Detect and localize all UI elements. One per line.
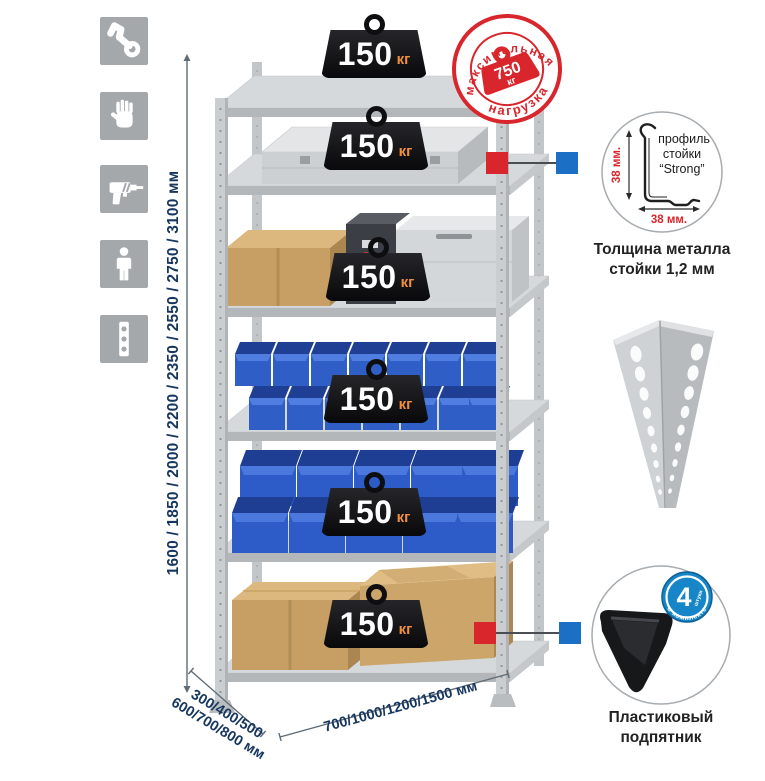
load-unit: кг — [399, 621, 413, 638]
load-value: 150 — [338, 494, 393, 531]
weight-ring-icon — [368, 237, 389, 258]
load-value: 150 — [338, 36, 393, 73]
load-value: 150 — [340, 381, 395, 418]
weight-plate-icon: 150 кг — [325, 253, 431, 301]
shelf-load-badge: 150 кг — [323, 106, 429, 170]
profile-dim-horizontal: 38 мм. — [651, 214, 687, 226]
load-unit: кг — [399, 143, 413, 160]
load-unit: кг — [399, 396, 413, 413]
angle-post-graphic — [613, 320, 714, 508]
count-badge: 4 штуки в комплекте — [662, 572, 712, 622]
weight-plate-icon: 150 кг — [321, 488, 427, 536]
foot-caption-line1: Пластиковый — [609, 709, 714, 726]
profile-label-line3: “Strong” — [659, 162, 704, 176]
shelf-load-badge: 150 кг — [323, 359, 429, 423]
load-unit: кг — [401, 274, 415, 291]
foot-callout-connector — [474, 622, 581, 644]
weight-plate-icon: 150 кг — [323, 600, 429, 648]
foot-detail-circle: 4 штуки в комплекте — [592, 566, 730, 704]
foot-caption: Пластиковый подпятник — [568, 708, 754, 747]
weight-ring-icon — [364, 472, 385, 493]
weight-ring-icon — [364, 14, 385, 35]
weight-ring-icon — [366, 106, 387, 127]
profile-label-line2: стойки — [663, 147, 701, 161]
profile-label-line1: профиль — [658, 132, 710, 146]
shelf-load-badge: 150 кг — [321, 472, 427, 536]
weight-plate-icon: 150 кг — [323, 375, 429, 423]
load-value: 150 — [340, 606, 395, 643]
profile-detail-circle: 38 мм. 38 мм. профиль стойки “Strong” — [602, 112, 722, 232]
profile-caption-line2: стойки 1,2 мм — [609, 261, 714, 278]
weight-plate-icon: 150 кг — [323, 122, 429, 170]
load-unit: кг — [397, 509, 411, 526]
weight-ring-icon — [366, 359, 387, 380]
load-value: 150 — [340, 128, 395, 165]
weight-plate-icon: 150 кг — [321, 30, 427, 78]
weight-ring-icon — [366, 584, 387, 605]
shelf-load-badge: 150 кг — [323, 584, 429, 648]
load-unit: кг — [397, 51, 411, 68]
shelf-load-badge: 150 кг — [321, 14, 427, 78]
profile-caption: Толщина металла стойки 1,2 мм — [560, 240, 764, 279]
shelf-load-badge: 150 кг — [325, 237, 431, 301]
height-dimension-label: 1600 / 1850 / 2000 / 2200 / 2350 / 2550 … — [165, 53, 185, 693]
foot-caption-line2: подпятник — [620, 729, 701, 746]
profile-caption-line1: Толщина металла — [594, 241, 731, 258]
load-value: 150 — [342, 259, 397, 296]
profile-dim-vertical: 38 мм. — [611, 147, 623, 183]
count-badge-value: 4 — [676, 582, 691, 612]
